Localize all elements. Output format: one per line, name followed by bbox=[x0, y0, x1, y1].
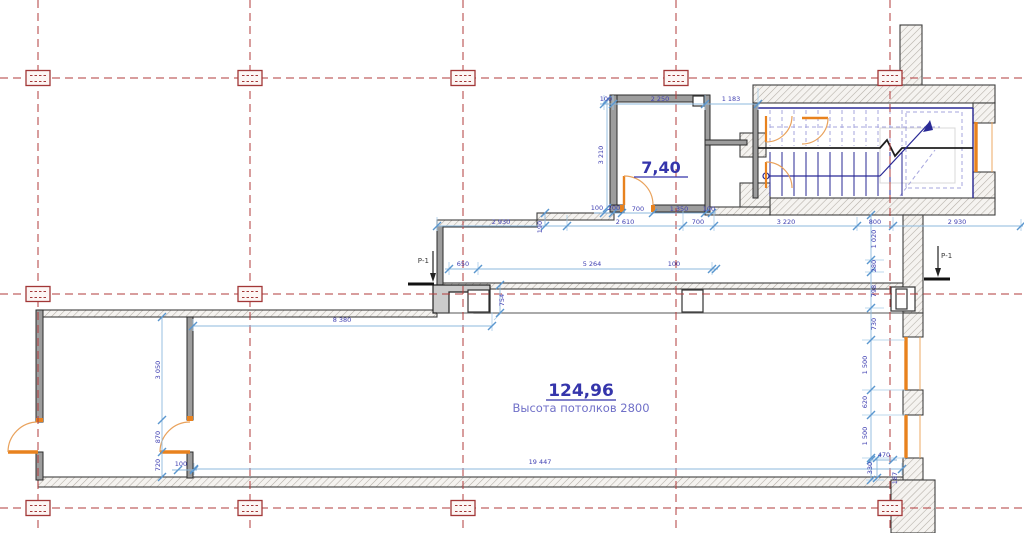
wall-segment bbox=[973, 172, 995, 200]
partition-wall bbox=[610, 95, 617, 212]
section-marker-label: Р-1 bbox=[418, 257, 429, 265]
dimension-label: 2 250 bbox=[651, 95, 670, 103]
dimension-label: 1 020 bbox=[870, 230, 878, 249]
dimension-label: 620 bbox=[861, 396, 869, 408]
partition-wall bbox=[187, 452, 193, 478]
dimension-label: 1 500 bbox=[861, 356, 869, 375]
dimension-label: 470 bbox=[878, 451, 890, 459]
dimension-labels-layer: 1002 2501 1833 2101002007001 3501002 930… bbox=[154, 95, 966, 484]
partition-wall bbox=[753, 103, 758, 198]
dimension-label: 100 bbox=[703, 205, 715, 213]
grid-column-marker bbox=[451, 71, 475, 86]
grid-column-marker bbox=[238, 501, 262, 516]
dimension-label: 100 bbox=[175, 460, 187, 468]
dimension-label: 650 bbox=[457, 260, 469, 268]
dimension-label: 700 bbox=[692, 218, 704, 226]
dimension-label: 870 bbox=[154, 431, 162, 443]
grid-column-marker bbox=[238, 71, 262, 86]
exterior-wall bbox=[36, 310, 43, 422]
floor-plan-canvas: 1002 2501 1833 2101002007001 3501002 930… bbox=[0, 0, 1024, 533]
dimension-label: 19 447 bbox=[529, 458, 552, 466]
walls-layer bbox=[36, 25, 995, 533]
wall-segment bbox=[770, 198, 995, 215]
dimension-label: 100 bbox=[668, 260, 680, 268]
wall-segment bbox=[753, 85, 995, 103]
dimension-label: 700 bbox=[632, 205, 644, 213]
partition-wall bbox=[705, 140, 747, 145]
dimension-label: 100 bbox=[591, 204, 603, 212]
ceiling-height-note: Высота потолков 2800 bbox=[512, 401, 649, 415]
door-jamb bbox=[187, 416, 193, 421]
section-marker-right: Р-1 bbox=[924, 246, 952, 279]
grid-column-marker bbox=[664, 71, 688, 86]
room-area-label: 124,96 bbox=[548, 381, 614, 401]
grid-column-marker bbox=[26, 287, 50, 302]
wall-segment bbox=[38, 310, 437, 317]
dimension-label: 798 bbox=[870, 285, 878, 297]
section-arrow-icon bbox=[935, 268, 941, 277]
dimension-label: 3 220 bbox=[777, 218, 796, 226]
section-arrow-icon bbox=[430, 273, 436, 282]
dimension-label: 200 bbox=[608, 204, 620, 212]
dimension-label: 100 bbox=[600, 95, 612, 103]
dimension-label: 187 bbox=[891, 472, 899, 484]
stair-area bbox=[758, 108, 973, 198]
dimension-label: 3 050 bbox=[154, 361, 162, 380]
dimension-label: 2 930 bbox=[492, 218, 511, 226]
dimension-label: 720 bbox=[154, 459, 162, 471]
dimension-label: 2 930 bbox=[948, 218, 967, 226]
wall-segment bbox=[903, 313, 923, 337]
partition-wall bbox=[705, 95, 710, 212]
column-box bbox=[468, 290, 489, 312]
dimension-label: 1 350 bbox=[670, 205, 689, 213]
grid-column-marker bbox=[238, 287, 262, 302]
dimension-label: 730 bbox=[870, 318, 878, 330]
grid-column-marker bbox=[26, 501, 50, 516]
wall-segment bbox=[437, 283, 903, 289]
grid-column-marker bbox=[878, 501, 902, 516]
partition-wall bbox=[437, 226, 443, 285]
partition-wall bbox=[187, 317, 193, 420]
floor-plan-page: 1002 2501 1833 2101002007001 3501002 930… bbox=[0, 0, 1024, 533]
dimension-label: 2 610 bbox=[616, 218, 635, 226]
dimension-label: 800 bbox=[869, 218, 881, 226]
section-marker-left: Р-1 bbox=[408, 251, 436, 284]
dimension-label: 190 bbox=[536, 221, 544, 233]
grid-column-marker bbox=[878, 71, 902, 86]
column-box bbox=[682, 290, 703, 312]
room-area-label: 7,40 bbox=[641, 158, 680, 177]
dimension-label: 280 bbox=[870, 260, 878, 272]
door-arc bbox=[160, 422, 190, 452]
exterior-wall bbox=[36, 452, 43, 480]
door-arc bbox=[624, 176, 653, 205]
dimension-label: 330 bbox=[866, 462, 874, 474]
dimension-label: 1 500 bbox=[861, 427, 869, 446]
wall-segment bbox=[903, 458, 923, 480]
dimension-label: 3 210 bbox=[597, 146, 605, 165]
grid-column-marker bbox=[26, 71, 50, 86]
wall-segment bbox=[38, 477, 905, 487]
niche-window bbox=[896, 289, 907, 309]
wall-pier bbox=[903, 390, 923, 415]
dimension-label: 8 380 bbox=[333, 316, 352, 324]
dimension-label: 5 264 bbox=[583, 260, 602, 268]
dimension-label: 754 bbox=[498, 294, 506, 306]
door-jamb bbox=[36, 418, 43, 422]
shaft-box bbox=[693, 96, 704, 106]
door-arc bbox=[8, 422, 38, 452]
section-marker-label: Р-1 bbox=[941, 252, 952, 260]
grid-column-marker bbox=[451, 501, 475, 516]
wall-segment bbox=[973, 103, 995, 123]
dimension-label: 1 183 bbox=[722, 95, 741, 103]
